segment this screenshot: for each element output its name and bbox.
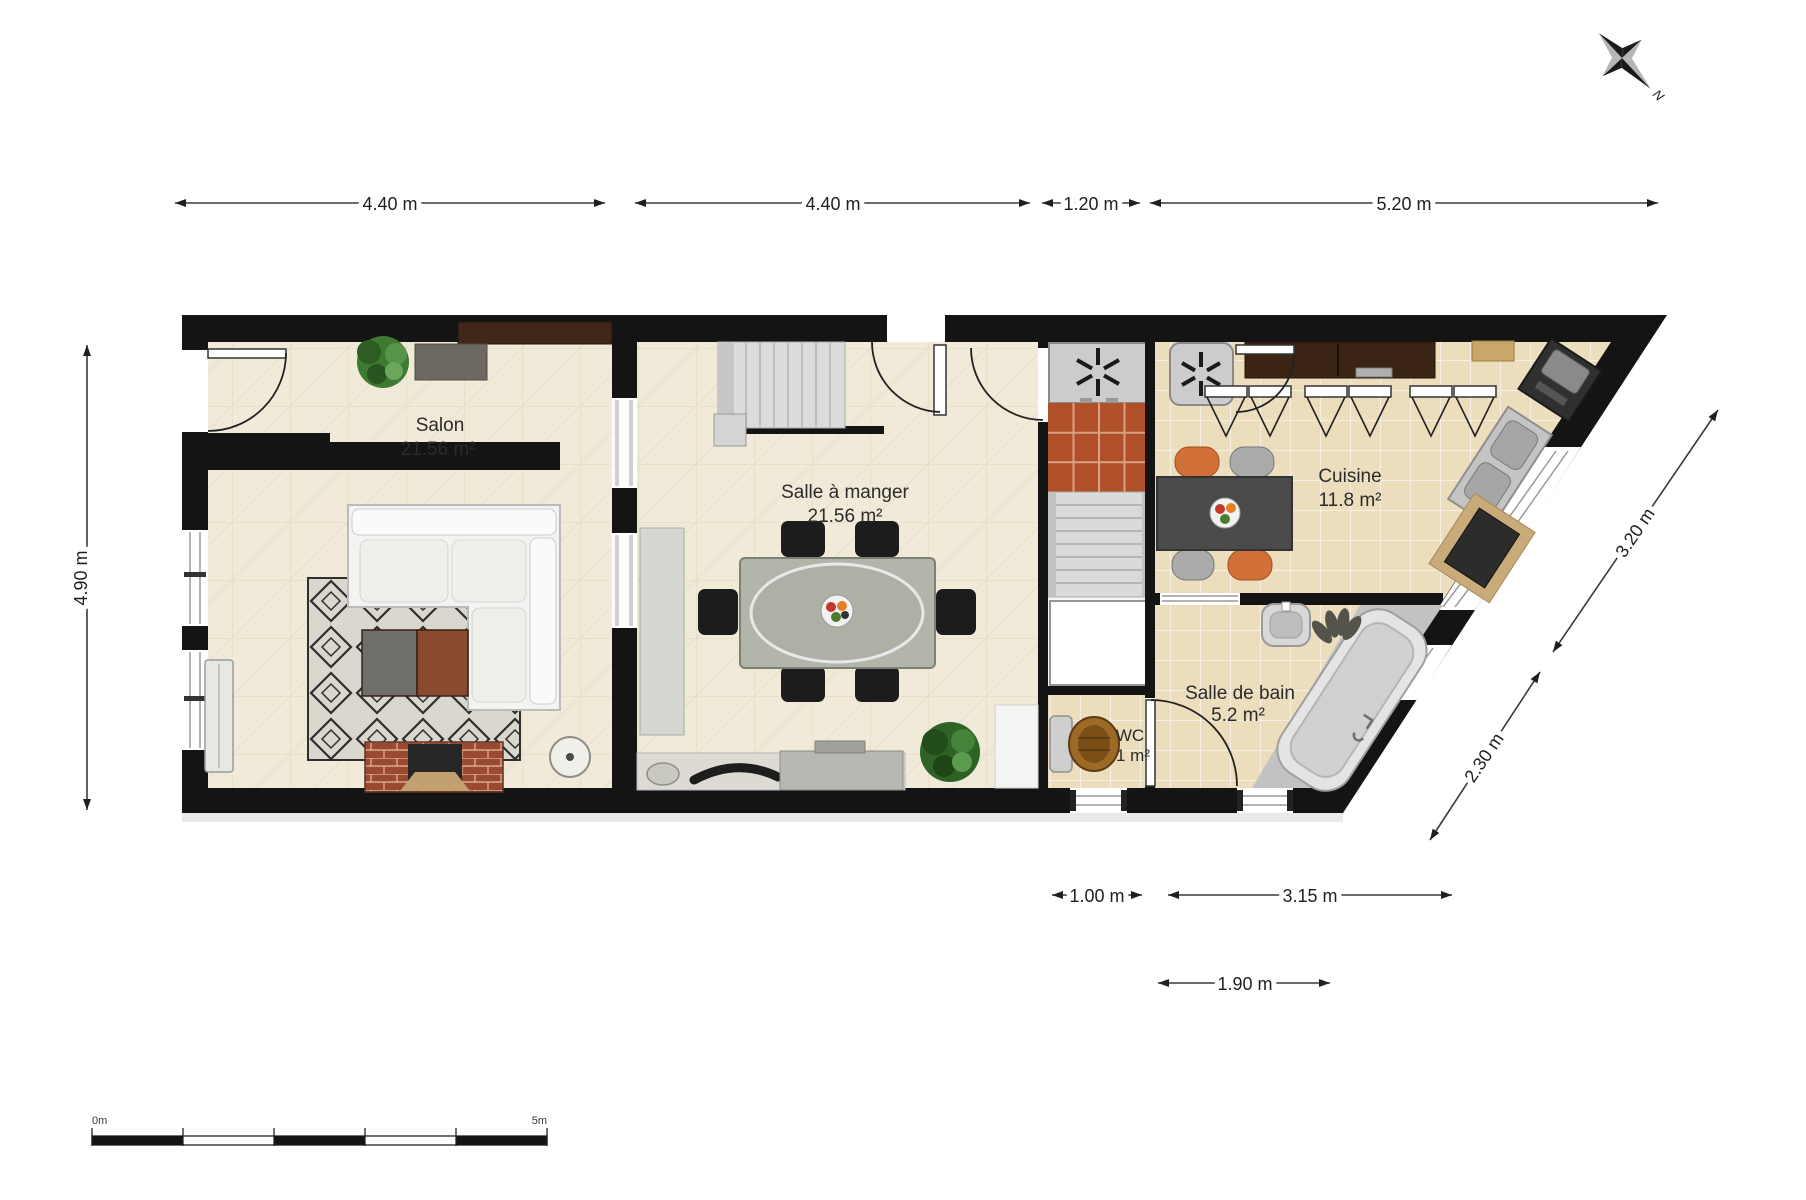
hall-dining-opening [1038, 348, 1048, 422]
decor-stone [647, 763, 679, 785]
coffee-table [362, 630, 468, 696]
dining-console [780, 751, 903, 790]
dim-bottom-2: 3.15 m [1282, 886, 1337, 906]
dining-panel [995, 705, 1038, 788]
salon-tv-cabinet [415, 344, 487, 380]
dim-top-1: 4.40 m [362, 194, 417, 214]
bottom-window-1 [1070, 788, 1127, 813]
floor-plan-canvas: Salon 21.56 m² Salle à manger 21.56 m² C… [0, 0, 1806, 1200]
bath-door-leaf [1146, 700, 1155, 786]
salon-plant [357, 336, 409, 388]
salon-area: 21.56 m² [401, 439, 476, 460]
fireplace [365, 742, 503, 792]
stair-newel [714, 414, 746, 446]
dim-top-3: 1.20 m [1063, 194, 1118, 214]
dining-plant [920, 722, 980, 782]
dining-label: Salle à manger [781, 482, 909, 503]
fruit-bowl [821, 595, 853, 627]
scale-start-label: 0m [92, 1115, 107, 1127]
salon-label: Salon [416, 415, 465, 436]
dining-door-opening [887, 315, 945, 342]
bath-interior-window [1160, 593, 1240, 605]
stair-landing [1050, 601, 1148, 685]
salon-shelf [458, 322, 612, 344]
bottom-window-2 [1237, 788, 1293, 813]
front-door-leaf [208, 349, 286, 358]
wc-area: 1 m² [1116, 746, 1150, 765]
dining-area: 21.56 m² [808, 506, 883, 527]
salon-entry-wall-stub [182, 433, 330, 470]
dim-top-4: 5.20 m [1376, 194, 1431, 214]
dining-sideboard [640, 528, 684, 735]
toilet [1050, 716, 1119, 772]
wall-cabinet [1472, 341, 1514, 361]
kitchen-door-leaf [1236, 345, 1294, 354]
building-shadow [182, 813, 1343, 822]
floor-plan-page: Salon 21.56 m² Salle à manger 21.56 m² C… [0, 0, 1806, 1200]
dim-left: 4.90 m [71, 550, 91, 605]
wall-wc-top [1038, 686, 1155, 695]
front-door-opening [182, 350, 208, 432]
wc-label: WC [1116, 726, 1144, 745]
kitchen-fruit-bowl [1210, 498, 1240, 528]
scale-end-label: 5m [532, 1115, 547, 1127]
counter-sink [1356, 368, 1392, 377]
left-window-1 [182, 530, 208, 626]
dim-top-2: 4.40 m [805, 194, 860, 214]
dim-bottom-lower: 1.90 m [1217, 974, 1272, 994]
hall-contents [1048, 343, 1150, 685]
dining-door-leaf [934, 345, 946, 415]
bath-sink [1262, 602, 1310, 646]
kitchen-area: 11.8 m² [1318, 490, 1381, 511]
dim-bottom-1: 1.00 m [1069, 886, 1124, 906]
kitchen-label: Cuisine [1318, 466, 1381, 487]
bathroom-label: Salle de bain [1185, 683, 1295, 704]
bathroom-area: 5.2 m² [1211, 705, 1265, 726]
